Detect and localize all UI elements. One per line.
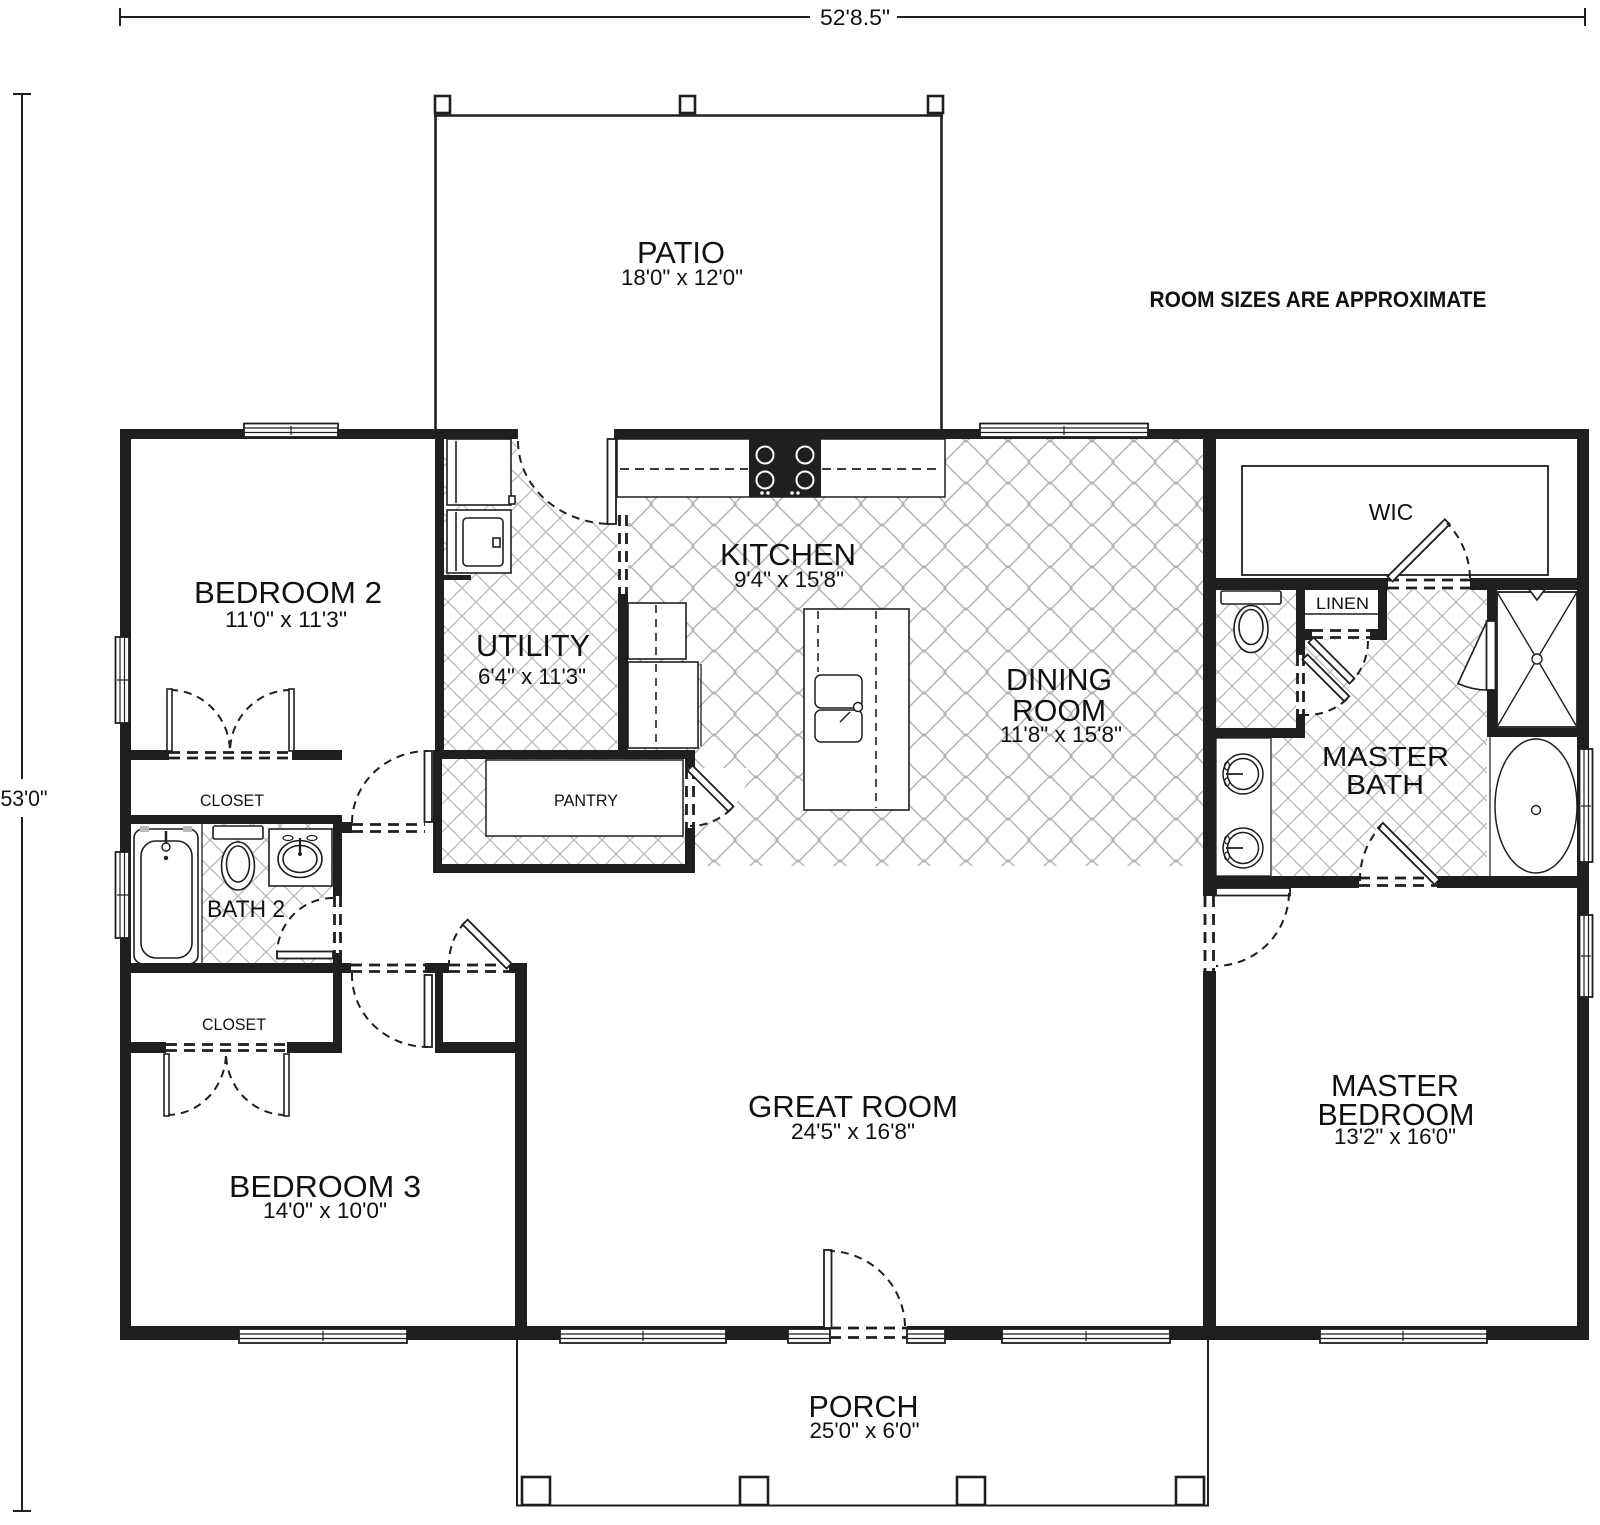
svg-text:9'4" x 15'8": 9'4" x 15'8" — [734, 567, 844, 592]
svg-text:11'8" x 15'8": 11'8" x 15'8" — [1000, 722, 1122, 747]
svg-text:CLOSET: CLOSET — [200, 791, 264, 810]
svg-text:6'4" x 11'3": 6'4" x 11'3" — [478, 664, 586, 689]
svg-text:ROOM SIZES ARE APPROXIMATE: ROOM SIZES ARE APPROXIMATE — [1150, 287, 1487, 312]
svg-text:BATH 2: BATH 2 — [207, 896, 285, 923]
svg-text:13'2" x 16'0": 13'2" x 16'0" — [1334, 1124, 1456, 1149]
svg-text:PANTRY: PANTRY — [554, 791, 618, 810]
svg-text:14'0" x 10'0": 14'0" x 10'0" — [263, 1198, 387, 1223]
svg-text:WIC: WIC — [1369, 499, 1414, 525]
svg-text:24'5" x 16'8": 24'5" x 16'8" — [791, 1119, 915, 1144]
svg-text:52'8.5": 52'8.5" — [820, 5, 890, 30]
svg-text:UTILITY: UTILITY — [476, 628, 590, 663]
svg-text:18'0" x 12'0": 18'0" x 12'0" — [621, 265, 743, 290]
svg-text:53'0": 53'0" — [1, 786, 48, 811]
svg-text:11'0" x 11'3": 11'0" x 11'3" — [225, 607, 347, 632]
svg-text:BEDROOM 2: BEDROOM 2 — [194, 575, 382, 610]
svg-text:CLOSET: CLOSET — [202, 1015, 266, 1034]
svg-text:BATH: BATH — [1346, 769, 1424, 800]
svg-text:MASTER: MASTER — [1322, 741, 1449, 772]
svg-text:25'0" x 6'0": 25'0" x 6'0" — [810, 1418, 920, 1443]
svg-text:DINING: DINING — [1006, 662, 1112, 697]
svg-text:LINEN: LINEN — [1316, 594, 1369, 613]
